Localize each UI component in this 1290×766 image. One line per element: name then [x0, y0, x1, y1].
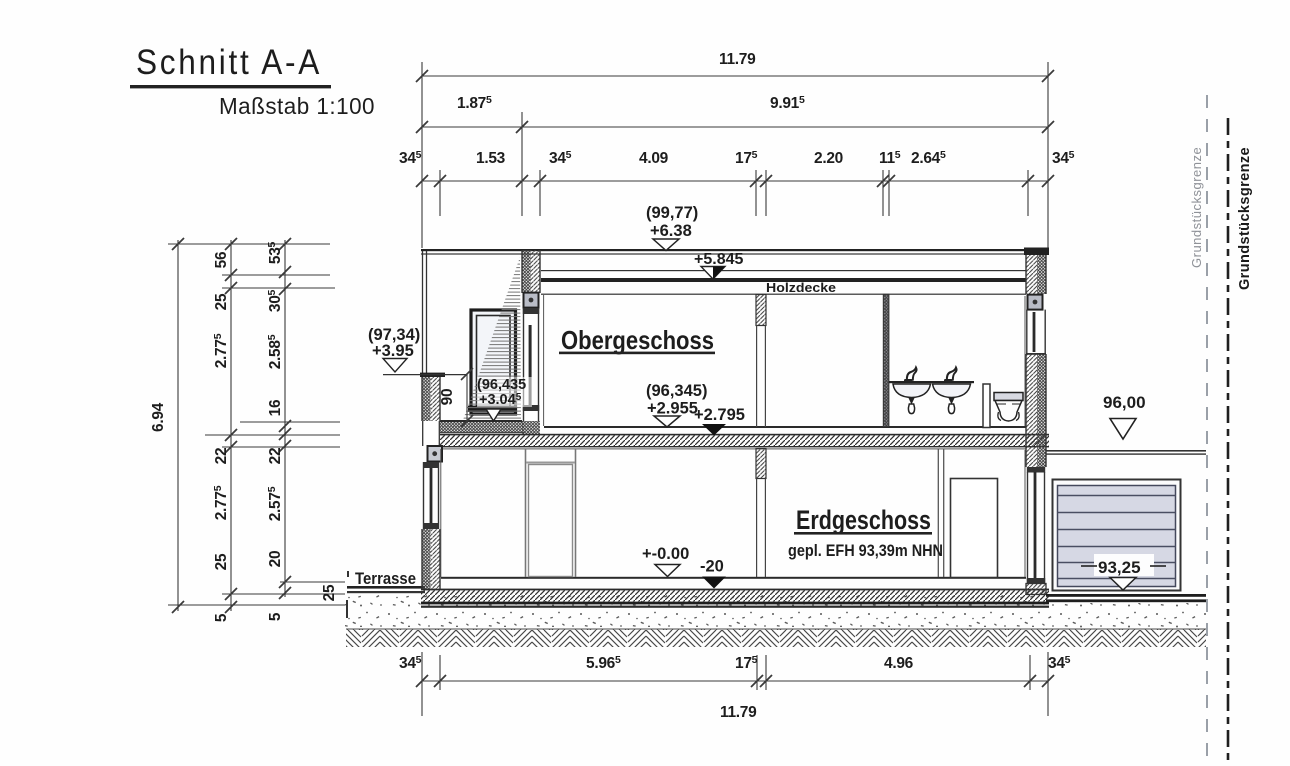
- svg-text:90: 90: [439, 389, 456, 406]
- svg-text:+6.38: +6.38: [650, 222, 692, 240]
- svg-text:25: 25: [213, 293, 230, 310]
- svg-text:16: 16: [267, 399, 284, 416]
- svg-text:gepl. EFH 93,39m NHN: gepl. EFH 93,39m NHN: [788, 541, 943, 560]
- svg-text:5: 5: [267, 612, 284, 621]
- svg-text:Schnitt A-A: Schnitt A-A: [136, 43, 322, 82]
- svg-text:22: 22: [267, 448, 284, 465]
- svg-text:Terrasse: Terrasse: [355, 570, 416, 588]
- svg-text:22: 22: [213, 448, 230, 465]
- svg-text:Erdgeschoss: Erdgeschoss: [796, 505, 931, 535]
- svg-text:Obergeschoss: Obergeschoss: [561, 325, 714, 355]
- svg-text:Holzdecke: Holzdecke: [766, 280, 836, 295]
- svg-text:(99,77): (99,77): [646, 204, 698, 222]
- svg-text:1.53: 1.53: [476, 150, 506, 167]
- svg-text:+3.95: +3.95: [372, 342, 414, 360]
- svg-text:4.96: 4.96: [884, 655, 914, 672]
- svg-text:Grundstücksgrenze: Grundstücksgrenze: [1189, 147, 1204, 268]
- svg-text:+2.955: +2.955: [647, 400, 698, 418]
- svg-text:4.09: 4.09: [639, 150, 669, 167]
- svg-text:5: 5: [213, 613, 230, 622]
- svg-text:96,00: 96,00: [1103, 393, 1146, 412]
- svg-text:25: 25: [321, 584, 338, 601]
- svg-text:(96,435: (96,435: [477, 377, 526, 393]
- svg-text:11.79: 11.79: [719, 51, 756, 68]
- svg-text:Maßstab 1:100: Maßstab 1:100: [219, 93, 375, 119]
- svg-text:Grundstücksgrenze: Grundstücksgrenze: [1237, 147, 1253, 290]
- svg-text:+-0.00: +-0.00: [642, 545, 689, 563]
- svg-text:56: 56: [213, 251, 230, 268]
- svg-text:+3.045: +3.045: [479, 392, 522, 408]
- svg-text:20: 20: [267, 551, 284, 568]
- svg-text:-20: -20: [700, 558, 724, 576]
- svg-text:2.20: 2.20: [814, 150, 843, 167]
- svg-text:93,25: 93,25: [1098, 558, 1141, 577]
- svg-text:6.94: 6.94: [150, 402, 167, 432]
- svg-text:11.79: 11.79: [720, 704, 757, 721]
- svg-text:25: 25: [213, 553, 230, 570]
- svg-text:(96,345): (96,345): [646, 382, 707, 400]
- svg-text:+5.845: +5.845: [694, 251, 743, 268]
- svg-text:+2.795: +2.795: [694, 406, 745, 424]
